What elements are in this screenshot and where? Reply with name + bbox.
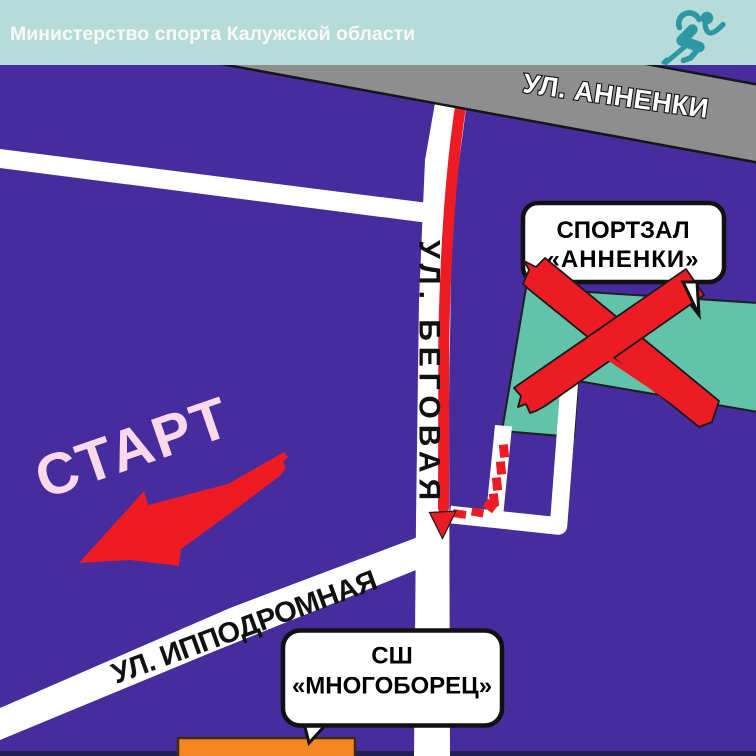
svg-text:Министерство спорта Калужской: Министерство спорта Калужской области [10, 23, 415, 45]
svg-text:УЛ. БЕГОВАЯ: УЛ. БЕГОВАЯ [413, 240, 446, 506]
svg-text:«МНОГОБОРЕЦ»: «МНОГОБОРЕЦ» [292, 673, 492, 700]
svg-text:«АННЕНКИ»: «АННЕНКИ» [547, 246, 700, 273]
svg-text:СШ: СШ [371, 643, 412, 670]
svg-text:СПОРТЗАЛ: СПОРТЗАЛ [556, 217, 689, 244]
